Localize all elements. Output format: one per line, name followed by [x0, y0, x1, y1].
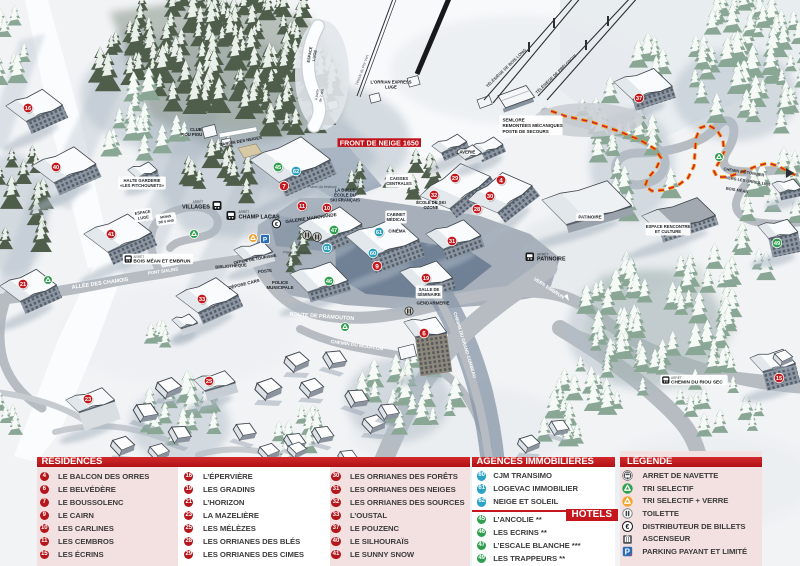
svg-text:POSTE DE SECOURS: POSTE DE SECOURS [503, 129, 549, 134]
svg-text:49: 49 [774, 241, 780, 247]
svg-text:SKI FRANÇAIS: SKI FRANÇAIS [330, 198, 360, 203]
svg-text:SÉMINAIRE: SÉMINAIRE [417, 292, 440, 297]
svg-text:33: 33 [199, 297, 205, 303]
svg-text:16: 16 [25, 106, 31, 112]
svg-text:FRONT DE NEIGE 1650: FRONT DE NEIGE 1650 [340, 138, 419, 147]
svg-text:10: 10 [324, 206, 330, 212]
svg-text:POLICE: POLICE [272, 280, 288, 285]
svg-text:ARRÊT: ARRÊT [239, 209, 250, 214]
svg-text:REMONTÉES MÉCANIQUES: REMONTÉES MÉCANIQUES [503, 121, 563, 128]
svg-text:29: 29 [452, 176, 458, 182]
svg-text:CABINET: CABINET [387, 212, 406, 217]
svg-text:LUGE: LUGE [385, 85, 397, 90]
svg-text:ET CULTURE: ET CULTURE [655, 229, 681, 234]
svg-text:MUNICIPALE: MUNICIPALE [267, 285, 294, 290]
svg-text:VILLAGES: VILLAGES [182, 204, 210, 210]
svg-text:7: 7 [282, 183, 286, 190]
svg-text:P: P [625, 548, 631, 557]
svg-text:PATINOIRE: PATINOIRE [537, 257, 566, 263]
svg-text:61: 61 [376, 230, 382, 236]
svg-text:SALLE DE: SALLE DE [419, 287, 440, 292]
svg-text:«LES PITCHOUNETS»: «LES PITCHOUNETS» [120, 183, 165, 188]
svg-text:GENDARMERIE: GENDARMERIE [417, 301, 450, 306]
svg-text:6: 6 [422, 330, 426, 337]
svg-text:45: 45 [275, 165, 281, 171]
svg-text:11: 11 [299, 204, 305, 210]
svg-text:PATINOIRE: PATINOIRE [578, 215, 601, 220]
svg-text:OZONE: OZONE [424, 205, 439, 210]
svg-text:61: 61 [324, 246, 330, 252]
svg-text:31: 31 [449, 239, 455, 245]
svg-text:9: 9 [375, 263, 379, 270]
svg-text:41: 41 [108, 232, 114, 238]
svg-text:ARRÊT: ARRÊT [193, 199, 204, 204]
svg-text:€: € [626, 524, 630, 531]
svg-text:40: 40 [53, 165, 59, 171]
svg-text:CHAMP LACAS: CHAMP LACAS [239, 215, 280, 221]
svg-text:60: 60 [370, 251, 376, 257]
svg-text:23: 23 [85, 397, 91, 403]
svg-text:CAISSES: CAISSES [390, 176, 409, 181]
svg-text:P: P [263, 236, 268, 243]
svg-text:Place d'accueil: Place d'accueil [283, 250, 308, 254]
svg-text:Place du festival: Place du festival [307, 184, 336, 189]
svg-text:30: 30 [487, 194, 493, 200]
svg-text:HALTE GARDERIE: HALTE GARDERIE [124, 178, 161, 183]
svg-text:CHEMIN DU RIOU SEC: CHEMIN DU RIOU SEC [671, 379, 723, 385]
svg-text:SEMLORE: SEMLORE [503, 118, 525, 123]
svg-text:15: 15 [776, 376, 782, 382]
svg-text:25: 25 [206, 379, 212, 385]
svg-text:62: 62 [293, 169, 299, 175]
svg-text:ESPACE RENCONTRE: ESPACE RENCONTRE [646, 224, 691, 229]
svg-text:37: 37 [636, 96, 642, 102]
svg-text:21: 21 [20, 282, 26, 288]
svg-text:ARRÊT: ARRÊT [133, 254, 144, 259]
svg-text:CENTRALES: CENTRALES [386, 181, 412, 186]
svg-text:28: 28 [474, 207, 480, 213]
svg-text:47: 47 [331, 228, 337, 234]
svg-text:MÉDICAL: MÉDICAL [386, 217, 406, 222]
svg-text:46: 46 [326, 279, 332, 285]
svg-text:LAVERIE: LAVERIE [457, 150, 476, 155]
svg-text:19: 19 [423, 276, 429, 282]
svg-text:4: 4 [499, 177, 503, 184]
svg-text:ARRÊT: ARRÊT [671, 375, 682, 380]
svg-text:CINÉMA: CINÉMA [388, 229, 406, 234]
svg-text:32: 32 [431, 193, 437, 199]
